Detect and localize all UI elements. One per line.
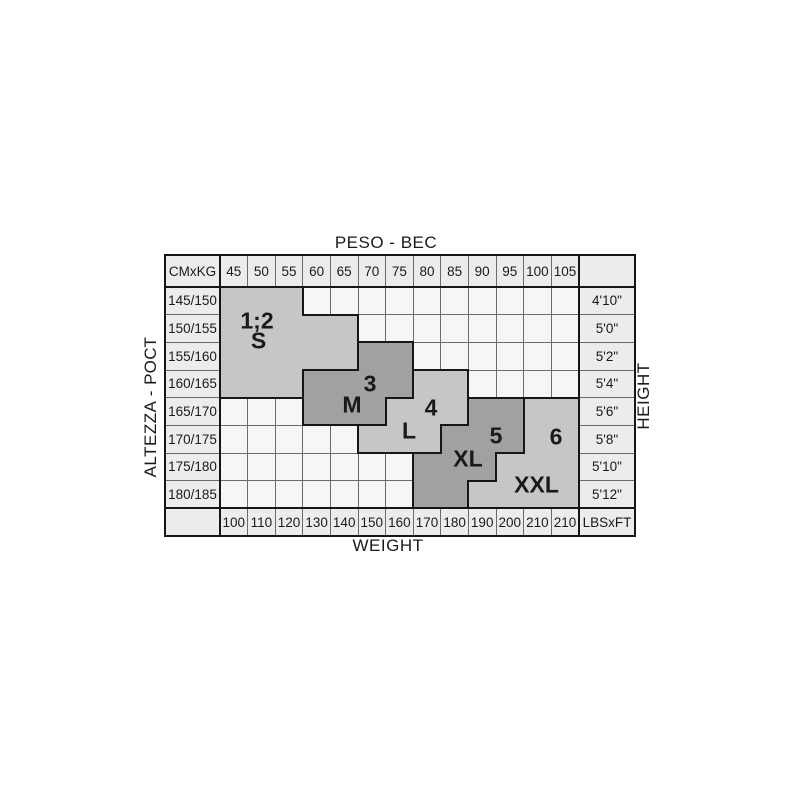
ft-label-cell: 5'2": [579, 342, 635, 370]
region-outline: [357, 424, 359, 454]
lbs-footer-cell: 210: [551, 508, 579, 536]
region-outline: [274, 397, 304, 399]
ft-label-cell: 5'10": [579, 453, 635, 481]
cm-label-cell: 150/155: [165, 315, 220, 343]
region-outline: [412, 480, 414, 510]
corner-bottom-left-cell: [165, 508, 220, 536]
lbs-footer-cell: 190: [468, 508, 496, 536]
region-outline: [385, 452, 415, 454]
corner-lbsxft-cell: LBSxFT: [579, 508, 635, 536]
region-size-s-row: [220, 370, 303, 398]
region-outline: [412, 452, 442, 454]
kg-header-cell: 95: [496, 255, 524, 287]
kg-header-cell: 105: [551, 255, 579, 287]
region-outline: [412, 452, 414, 482]
kg-header-cell: 60: [303, 255, 331, 287]
region-outline: [523, 397, 525, 427]
region-size-l-row: [358, 425, 441, 453]
region-outline: [495, 452, 497, 482]
region-outline: [385, 341, 415, 343]
region-outline: [357, 314, 359, 344]
region-outline: [302, 424, 332, 426]
region-outline: [440, 369, 470, 371]
kg-header-cell: 100: [524, 255, 552, 287]
region-outline: [467, 480, 497, 482]
region-outline: [523, 424, 525, 454]
kg-header-cell: 70: [358, 255, 386, 287]
lbs-footer-cell: 180: [441, 508, 469, 536]
cm-label-cell: 160/165: [165, 370, 220, 398]
region-outline: [302, 369, 304, 399]
region-outline: [329, 314, 359, 316]
lbs-footer-cell: 120: [275, 508, 303, 536]
region-size-xl-row: [413, 481, 468, 509]
region-letter-label-size-m: M: [342, 391, 361, 418]
ft-label-cell: 5'0": [579, 315, 635, 343]
region-outline: [495, 452, 525, 454]
region-number-label-size-m: 3: [364, 371, 377, 398]
region-outline: [523, 397, 553, 399]
region-size-l-row: [413, 370, 468, 398]
cm-label-cell: 175/180: [165, 453, 220, 481]
region-number-label-size-l: 4: [425, 394, 438, 421]
region-outline: [440, 424, 470, 426]
kg-header-cell: 65: [330, 255, 358, 287]
kg-header-cell: 80: [413, 255, 441, 287]
kg-header-cell: 75: [386, 255, 414, 287]
region-outline: [440, 424, 442, 454]
region-letter-label-size-s: S: [251, 328, 266, 355]
lbs-footer-cell: 110: [248, 508, 276, 536]
kg-header-cell: 90: [468, 255, 496, 287]
top-axis-title: PESO - ВЕС: [335, 233, 437, 253]
cm-label-cell: 165/170: [165, 398, 220, 426]
kg-header-cell: 50: [248, 255, 276, 287]
bottom-axis-title: WEIGHT: [353, 536, 424, 556]
region-letter-label-size-l: L: [402, 418, 416, 445]
region-outline: [385, 397, 415, 399]
region-outline: [302, 286, 304, 316]
ft-label-cell: 5'8": [579, 425, 635, 453]
region-outline: [550, 397, 580, 399]
left-axis-title: ALTEZZA - РОСТ: [141, 337, 161, 478]
region-size-xxl-row: [524, 398, 579, 426]
region-outline: [302, 397, 304, 427]
region-outline: [329, 424, 359, 426]
region-outline: [385, 397, 387, 427]
corner-top-right-cell: [579, 255, 635, 287]
lbs-footer-cell: 150: [358, 508, 386, 536]
region-outline: [467, 369, 469, 399]
region-size-m-row: [358, 342, 413, 370]
region-outline: [495, 397, 525, 399]
region-outline: [467, 480, 469, 510]
cm-label-cell: 155/160: [165, 342, 220, 370]
region-outline: [247, 397, 277, 399]
right-axis-title: HEIGHT: [634, 362, 654, 429]
region-outline: [219, 397, 249, 399]
lbs-footer-cell: 140: [330, 508, 358, 536]
region-outline: [357, 341, 387, 343]
corner-cmxkg-cell: CMxKG: [165, 255, 220, 287]
region-outline: [467, 397, 469, 427]
kg-header-cell: 45: [220, 255, 248, 287]
kg-header-cell: 85: [441, 255, 469, 287]
size-chart-canvas: PESO - ВЕС WEIGHT ALTEZZA - РОСТ HEIGHT …: [0, 0, 800, 800]
lbs-footer-cell: 170: [413, 508, 441, 536]
ft-label-cell: 4'10": [579, 287, 635, 315]
ft-label-cell: 5'6": [579, 398, 635, 426]
lbs-footer-cell: 100: [220, 508, 248, 536]
lbs-footer-cell: 130: [303, 508, 331, 536]
ft-label-cell: 5'12": [579, 481, 635, 509]
region-outline: [357, 452, 387, 454]
region-outline: [357, 341, 359, 371]
region-outline: [412, 341, 414, 371]
region-outline: [302, 369, 332, 371]
kg-header-cell: 55: [275, 255, 303, 287]
cm-label-cell: 180/185: [165, 481, 220, 509]
region-letter-label-size-xl: XL: [453, 445, 482, 472]
region-outline: [467, 397, 497, 399]
lbs-footer-cell: 210: [524, 508, 552, 536]
region-outline: [302, 314, 332, 316]
cm-label-cell: 145/150: [165, 287, 220, 315]
region-outline: [357, 424, 387, 426]
ft-label-cell: 5'4": [579, 370, 635, 398]
region-size-s-row: [220, 342, 358, 370]
lbs-footer-cell: 200: [496, 508, 524, 536]
lbs-footer-cell: 160: [386, 508, 414, 536]
region-outline: [412, 369, 414, 399]
region-letter-label-size-xxl: XXL: [514, 471, 559, 498]
region-number-label-size-xxl: 6: [550, 423, 563, 450]
region-number-label-size-xl: 5: [490, 422, 503, 449]
cm-label-cell: 170/175: [165, 425, 220, 453]
region-outline: [412, 369, 442, 371]
region-outline: [329, 369, 359, 371]
